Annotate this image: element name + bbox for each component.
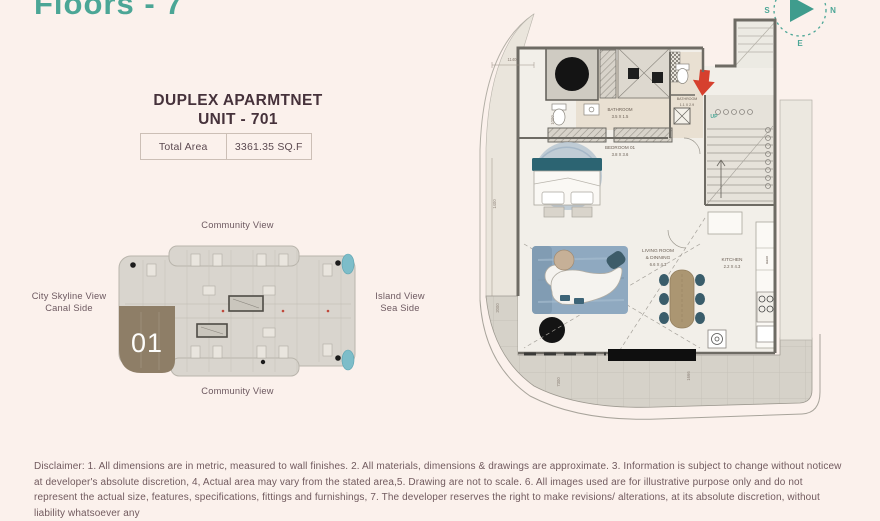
view-left-line1: City Skyline View [14, 291, 124, 303]
dim-2000: 2000 [495, 303, 500, 313]
unit-heading-line2: UNIT - 701 [118, 110, 358, 129]
wardrobe-icon [548, 128, 606, 142]
living-label-1: LIVING ROOM [642, 248, 674, 254]
dim-7300: 7300 [556, 377, 561, 387]
view-label-right: Island View Sea Side [350, 291, 450, 314]
wardrobe-icon [614, 128, 672, 142]
column-icon [555, 57, 589, 91]
view-left-line2: Canal Side [14, 303, 124, 315]
up-label: UP [710, 114, 718, 120]
cushion [560, 295, 570, 301]
bedroom-dims: 3.8 X 3.6 [612, 152, 629, 157]
dim-1400: 1400 [492, 199, 497, 209]
key-plan-unit-number: 01 [131, 328, 163, 358]
dim-1666: 1666 [686, 371, 691, 381]
dim-1140: 1140 [507, 57, 517, 62]
bedroom-label: BEDROOM 01 [605, 145, 636, 150]
sink-icon [584, 104, 599, 115]
floor-plan: 1140 1000 1400 2000 7300 1666 BATHROOM 3… [468, 8, 828, 448]
page-title: Floors - 7 [34, 0, 184, 22]
kitchen-sink-icon [757, 326, 775, 342]
toilet-icon [676, 64, 689, 84]
key-plan: 01 [113, 242, 365, 384]
view-label-top: Community View [115, 220, 360, 232]
compass-n: N [830, 6, 836, 15]
washing-machine-icon [708, 330, 726, 348]
dining-table [659, 270, 705, 328]
side-balcony-strip [780, 100, 812, 340]
view-right-line2: Sea Side [350, 303, 450, 315]
view-label-left: City Skyline View Canal Side [14, 291, 124, 314]
kitchen-dims: 2.2 X 4.3 [724, 264, 741, 269]
key-plan-unit-01: 01 [119, 306, 175, 373]
washer-icon [628, 68, 639, 79]
bathroom1-dims: 3.5 X 1.5 [612, 114, 629, 119]
unit-heading: DUPLEX APARMTNET UNIT - 701 [118, 91, 358, 129]
total-area-box: Total Area 3361.35 SQ.F [140, 133, 312, 160]
bathroom2-dims: 1.1 X 2.9 [680, 103, 694, 107]
column-icon [539, 317, 565, 343]
stove-icon [757, 292, 775, 322]
dryer-icon [652, 72, 663, 83]
living-label-2: & DINNING [646, 255, 671, 261]
bathroom1-label: BATHROOM [607, 107, 632, 112]
tv-console [608, 349, 696, 361]
coffee-table [554, 250, 574, 270]
unit-heading-line1: DUPLEX APARMTNET [118, 91, 358, 110]
oven-label: oven [765, 256, 769, 264]
view-label-bottom: Community View [115, 386, 360, 398]
view-right-line1: Island View [350, 291, 450, 303]
living-dims: 6.6 X 4.3 [650, 262, 667, 267]
cushion [574, 298, 584, 304]
total-area-label: Total Area [141, 134, 227, 159]
disclaimer-text: Disclaimer: 1. All dimensions are in met… [34, 459, 846, 521]
dim-1000: 1000 [550, 115, 555, 125]
kitchen-label: KITCHEN [721, 257, 743, 263]
bathroom2-label: BATHROOM [677, 97, 698, 101]
vanity-strip [600, 50, 616, 98]
total-area-value: 3361.35 SQ.F [227, 134, 312, 159]
